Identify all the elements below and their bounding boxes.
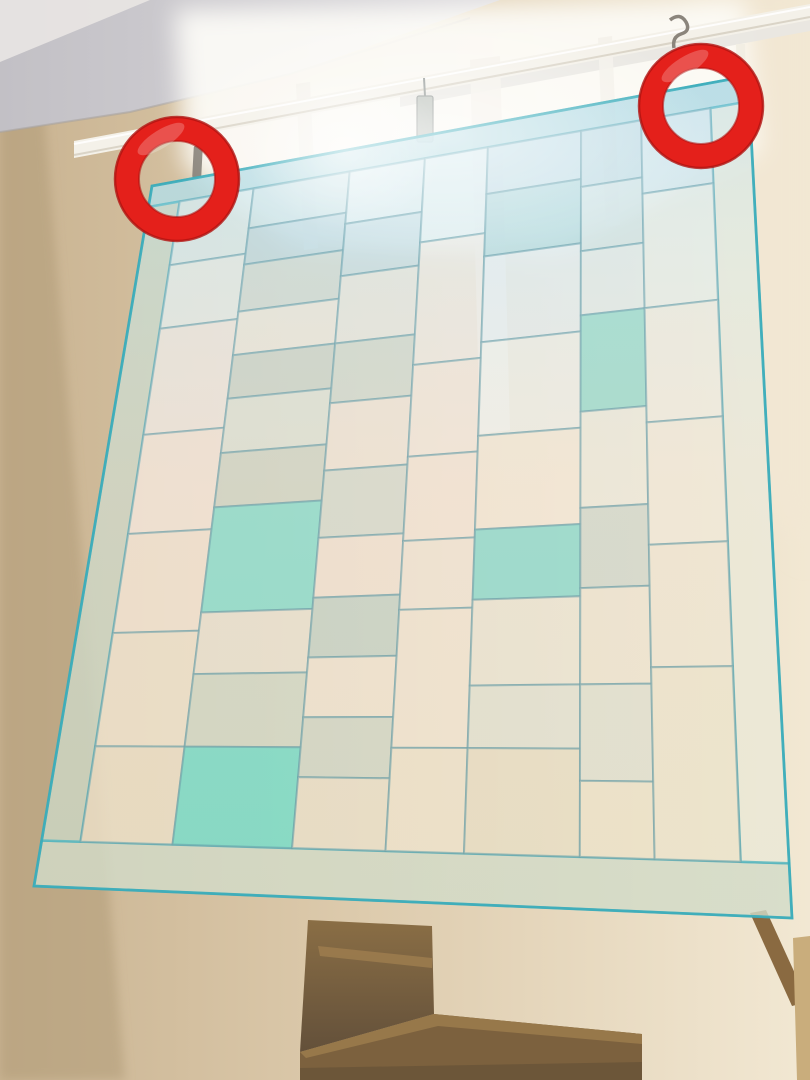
photo-stairwell-curtain <box>0 0 810 1080</box>
scene-svg <box>0 0 810 1080</box>
window-bloom-hotspot <box>245 70 445 230</box>
